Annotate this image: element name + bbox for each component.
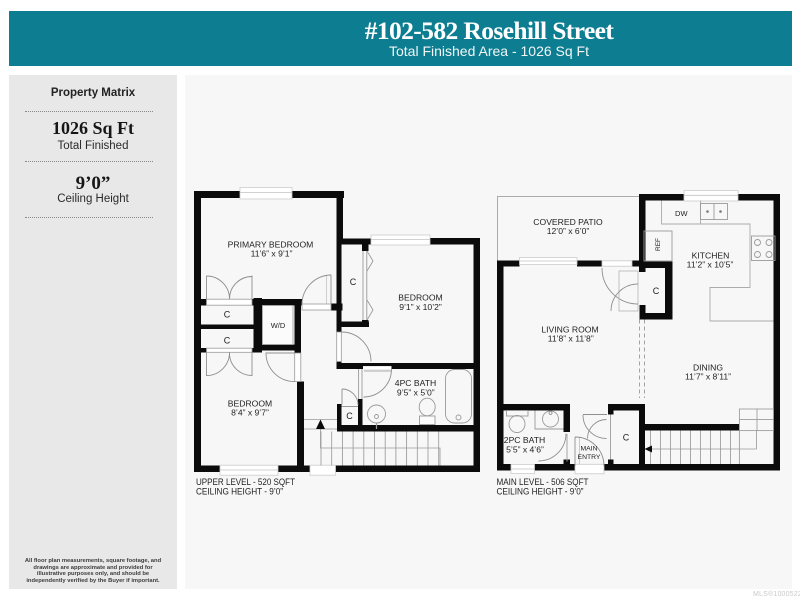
svg-text:CEILING HEIGHT - 9’0”: CEILING HEIGHT - 9’0” [196,486,283,497]
svg-text:12’0” x 6’0”: 12’0” x 6’0” [547,226,590,236]
svg-text:C: C [350,277,357,287]
svg-text:C: C [623,432,630,442]
svg-text:2PC BATH: 2PC BATH [504,435,545,445]
svg-text:C: C [224,336,231,346]
svg-text:11’7” x 8’11”: 11’7” x 8’11” [685,372,731,382]
svg-text:8’4” x 9’7”: 8’4” x 9’7” [231,408,269,418]
svg-text:9’1” x 10’2”: 9’1” x 10’2” [399,302,442,312]
svg-text:C: C [653,286,660,296]
svg-text:11’6” x 9’1”: 11’6” x 9’1” [251,248,293,258]
svg-text:11’8” x 11’8”: 11’8” x 11’8” [548,334,594,344]
svg-text:C: C [224,310,231,320]
svg-text:C: C [346,411,353,421]
svg-text:11’2” x 10’5”: 11’2” x 10’5” [687,259,734,269]
svg-text:9’5” x 5’0”: 9’5” x 5’0” [397,387,435,397]
svg-text:DW: DW [675,209,688,218]
svg-text:CEILING HEIGHT - 9’0”: CEILING HEIGHT - 9’0” [497,486,584,497]
svg-text:ENTRY: ENTRY [578,454,601,461]
svg-text:MAIN: MAIN [581,445,598,452]
svg-text:5’5” x 4’6”: 5’5” x 4’6” [506,445,544,455]
svg-text:REF: REF [655,238,662,251]
svg-text:W/D: W/D [271,321,286,330]
